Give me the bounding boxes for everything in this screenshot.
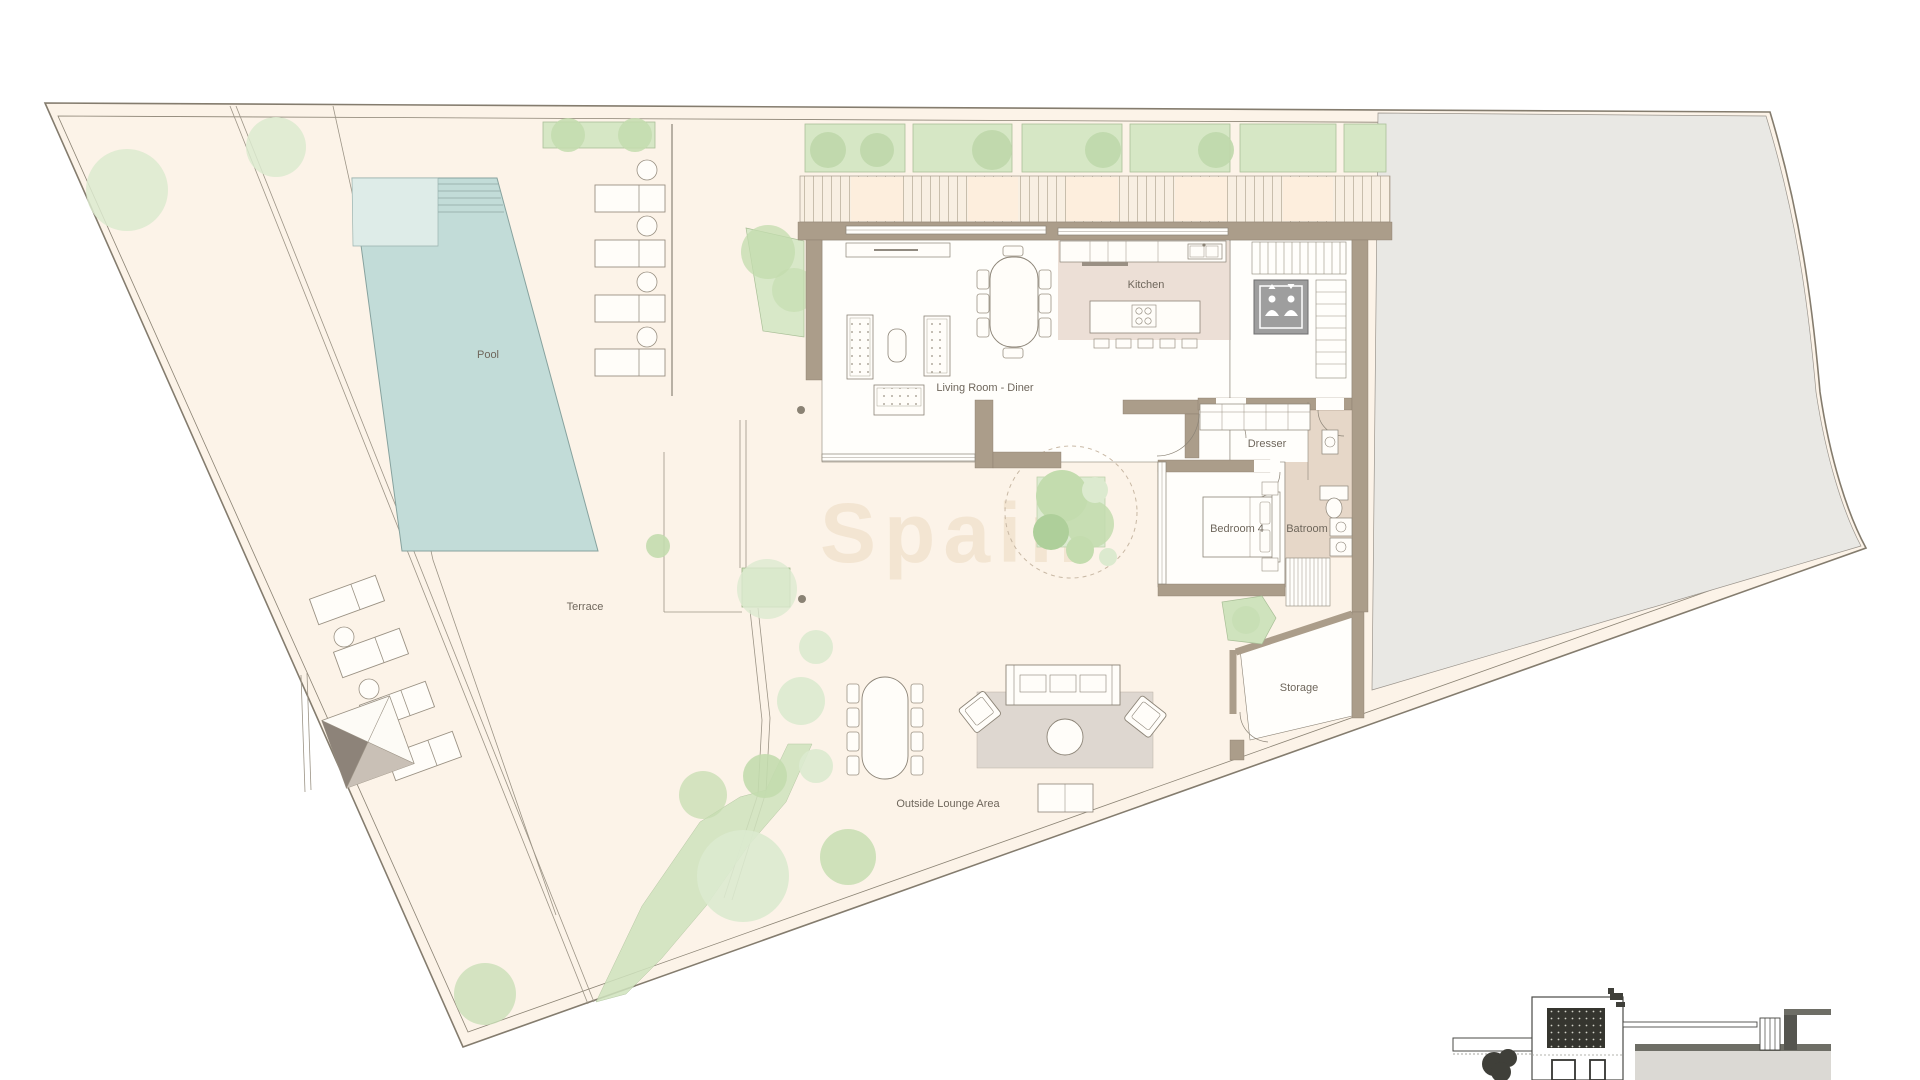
- tree: [1232, 606, 1260, 634]
- nightstand: [1262, 482, 1278, 495]
- sofa: [847, 315, 873, 379]
- tree: [646, 534, 670, 558]
- elevation-drawing: [1453, 988, 1831, 1080]
- living-room-label: Living Room - Diner: [936, 382, 1034, 394]
- tree: [1066, 536, 1094, 564]
- deck-louvers: [800, 176, 1390, 222]
- tree: [551, 118, 585, 152]
- tree: [799, 749, 833, 783]
- tree: [737, 559, 797, 619]
- elevation-window: [1590, 1060, 1605, 1080]
- tree: [454, 963, 516, 1025]
- washer-icon: [1322, 430, 1338, 454]
- site-plan-canvas: Spain: [0, 0, 1920, 1080]
- tree: [1099, 548, 1117, 566]
- bedroom4-label: Bedroom 4: [1210, 523, 1264, 535]
- wardrobe: [1200, 404, 1310, 430]
- tree: [679, 771, 727, 819]
- staircase: [1252, 242, 1346, 274]
- kitchen-island: [1090, 301, 1200, 333]
- elevation-window: [1552, 1060, 1575, 1080]
- staircase: [1316, 280, 1346, 378]
- sink-icon: [1188, 243, 1222, 259]
- tree: [799, 630, 833, 664]
- tree: [618, 118, 652, 152]
- tv-console: [846, 243, 950, 257]
- tree: [1033, 514, 1069, 550]
- tree: [246, 117, 306, 177]
- column: [798, 595, 806, 603]
- dresser-label: Dresser: [1248, 438, 1287, 450]
- terrace-label: Terrace: [567, 601, 604, 613]
- tree: [697, 830, 789, 922]
- site-plan: Spain: [0, 0, 1920, 1080]
- elevation-tree: [1482, 1049, 1517, 1080]
- coffee-table: [888, 329, 906, 362]
- outdoor-sofa: [1006, 665, 1120, 705]
- tree: [820, 829, 876, 885]
- pool-label: Pool: [477, 349, 499, 361]
- bathroom-label: Batroom: [1286, 523, 1328, 535]
- nightstand: [1262, 558, 1278, 571]
- elevation-louver: [1760, 1018, 1780, 1050]
- tree: [743, 754, 787, 798]
- outside-lounge-label: Outside Lounge Area: [896, 798, 1000, 810]
- perforated-panel: [1547, 1008, 1605, 1048]
- storage-label: Storage: [1280, 682, 1319, 694]
- sofa: [924, 316, 950, 376]
- column: [797, 406, 805, 414]
- sofa: [874, 385, 924, 415]
- kitchen-counter: [1060, 241, 1226, 266]
- hedge-planter: [543, 118, 655, 152]
- outdoor-coffee-table: [1047, 719, 1083, 755]
- elevator-icon: [1254, 280, 1308, 334]
- tree: [777, 677, 825, 725]
- tree: [86, 149, 168, 231]
- east-gravel-area: [1372, 113, 1861, 690]
- staircase: [1286, 558, 1330, 606]
- kitchen-label: Kitchen: [1128, 279, 1165, 291]
- tree: [1082, 477, 1108, 503]
- side-table: [1038, 784, 1093, 812]
